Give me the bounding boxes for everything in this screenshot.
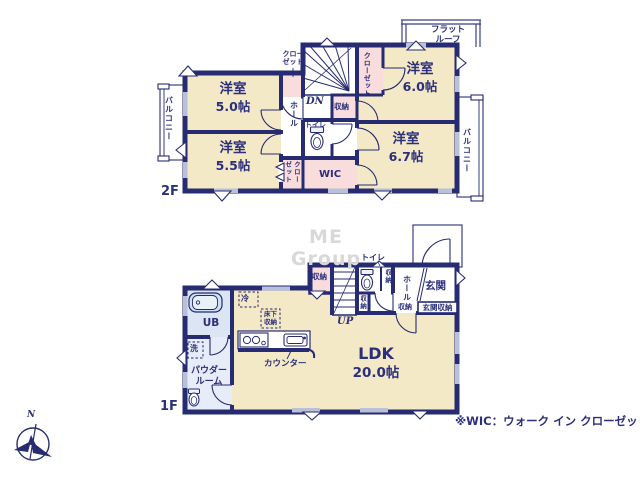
room-sw-name: 洋室 (198, 141, 268, 157)
floor1-label: 1F (160, 399, 178, 414)
footnote-wic: ※WIC：ウォーク イン クローゼット (455, 415, 640, 429)
toilet-1f-label: トイレ (361, 253, 385, 262)
toilet-icon-2f (311, 127, 324, 150)
flat-roof-label: フラット ルーフ (420, 25, 476, 45)
room-se-name: 洋室 (370, 132, 442, 148)
washer-label: 洗 (190, 344, 198, 353)
fridge-label: 冷 (241, 294, 249, 303)
ldk-size: 20.0帖 (332, 366, 420, 382)
storage-2f-label: 収納 (334, 103, 349, 112)
closet-ne-label: クローゼット (363, 52, 371, 97)
balcony-right-label: バルコニー (462, 128, 471, 173)
entrance-storage-label: 玄関収納 (418, 304, 457, 313)
unit-bath-label: UB (196, 317, 226, 329)
hall-2f-label: ホール (289, 101, 298, 128)
floorplan-page: ME Group ※WIC：ウォーク イン クローゼット 2F 1F N 洋室 … (0, 0, 640, 480)
watermark: ME Group (280, 226, 372, 271)
ldk-label: LDK 20.0帖 (332, 345, 420, 382)
counter-label: カウンター (264, 359, 307, 369)
storage-a-label: 収納 (312, 273, 327, 282)
room-ne-label: 洋室 6.0帖 (384, 62, 456, 95)
storage-b-label: 収納 (383, 269, 391, 284)
compass-icon (14, 424, 52, 460)
room-sw-label: 洋室 5.5帖 (198, 141, 268, 174)
closet-top-label: クロー ゼット (277, 50, 309, 67)
hall-1f-label: ホール (402, 275, 411, 302)
toilet-icon-1f (361, 270, 373, 291)
closet-sw-label: クロー ゼット (283, 161, 299, 184)
powder-room-label: パウダー ルーム (186, 366, 232, 387)
room-sw-size: 5.5帖 (198, 159, 268, 174)
underfloor-storage-label: 床下 収納 (262, 311, 279, 326)
ldk-name: LDK (332, 345, 420, 364)
balcony-left-label: バルコニー (164, 96, 173, 141)
porch-structure (413, 225, 462, 267)
compass-north-label: N (27, 410, 35, 421)
toilet-2f-label: トイレ (305, 121, 326, 129)
room-se-size: 6.7帖 (370, 150, 442, 165)
wic-label: WIC (311, 169, 349, 181)
entrance-label: 玄関 (425, 280, 446, 292)
stairs-down-label: DN (306, 96, 324, 108)
room-nw-name: 洋室 (198, 82, 268, 98)
room-nw-label: 洋室 5.0帖 (198, 82, 268, 115)
room-ne-size: 6.0帖 (384, 80, 456, 95)
room-ne-name: 洋室 (384, 62, 456, 78)
closet-top-floor (281, 73, 303, 97)
toilet-icon-powder (189, 389, 200, 406)
stairs-up-label: UP (337, 316, 353, 328)
storage-d-label: 収納 (398, 303, 412, 311)
storage-c-label: 収納 (358, 295, 366, 310)
floor2-label: 2F (161, 184, 179, 199)
room-nw-size: 5.0帖 (198, 100, 268, 115)
room-se-label: 洋室 6.7帖 (370, 132, 442, 165)
bathtub-icon (189, 293, 222, 312)
